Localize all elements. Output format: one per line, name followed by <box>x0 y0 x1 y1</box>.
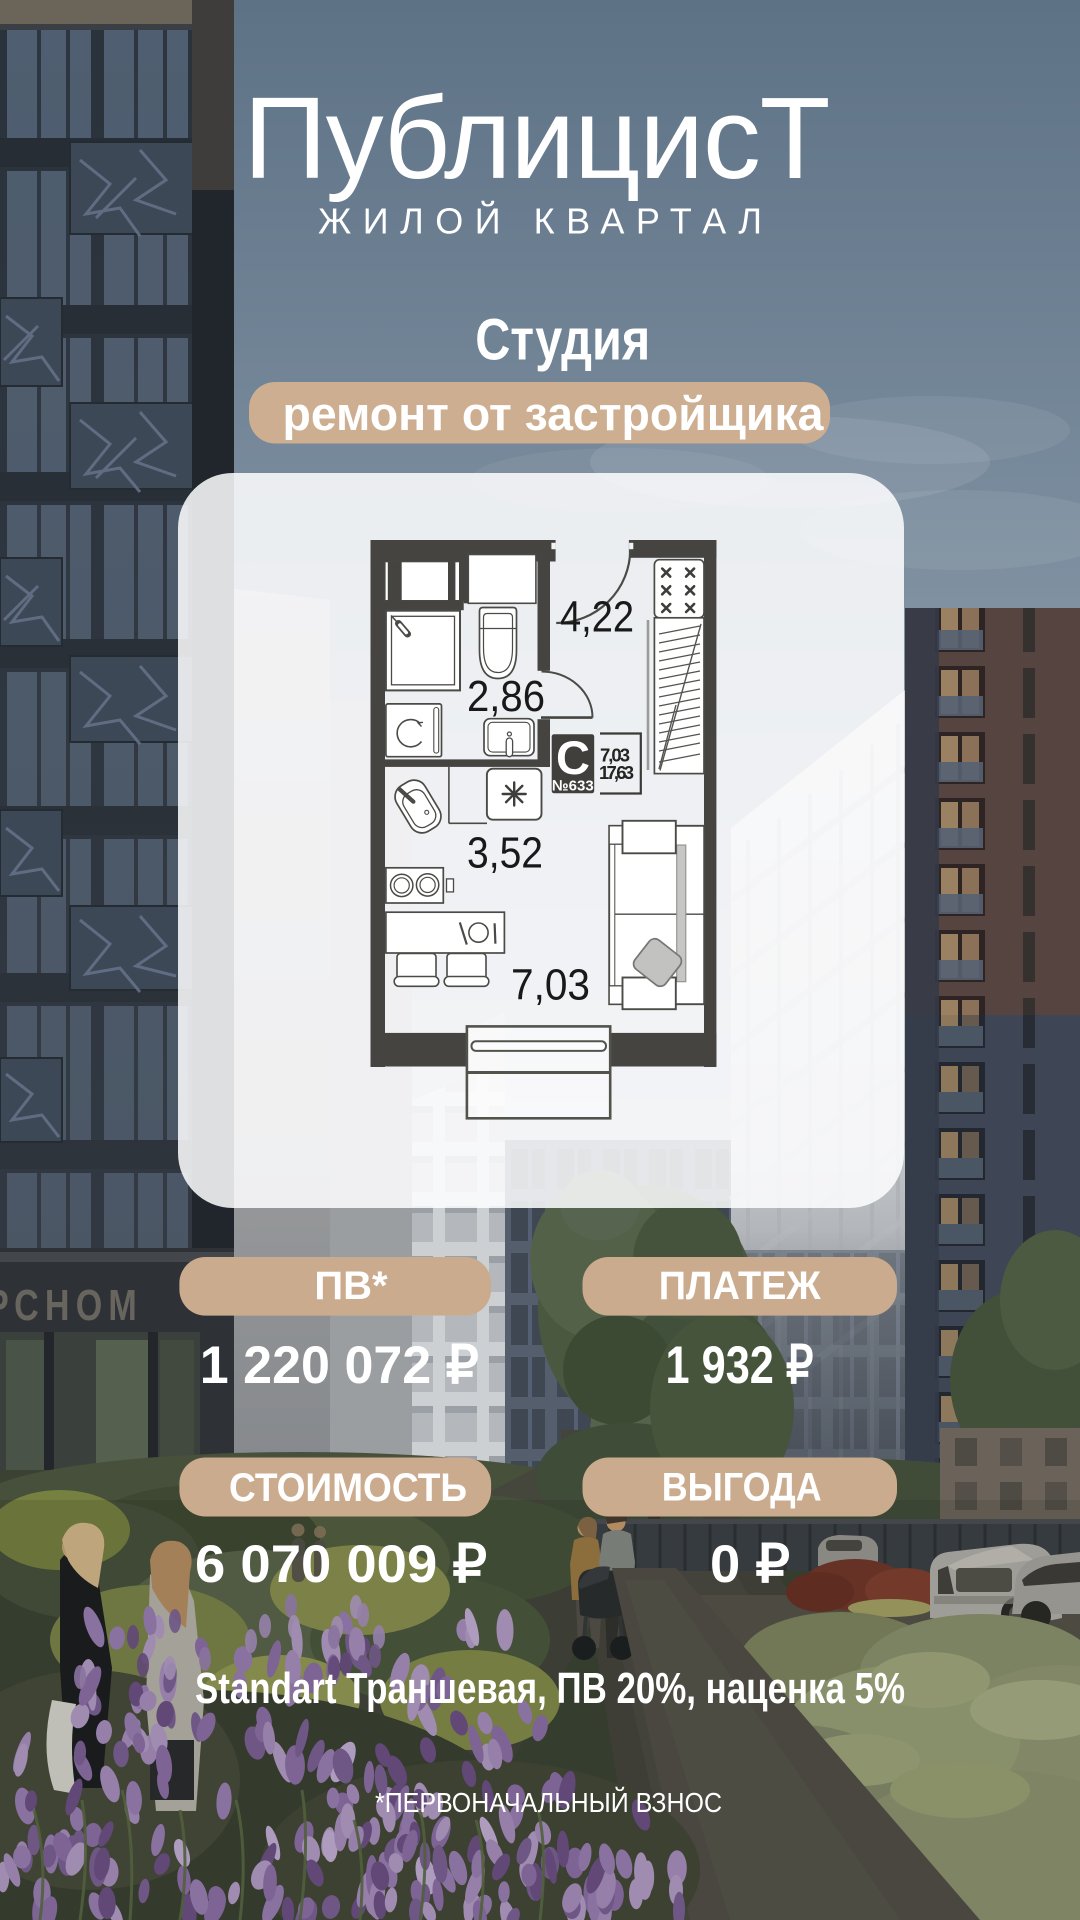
svg-text:ВЫГОДА: ВЫГОДА <box>662 1466 822 1510</box>
svg-text:СТОИМОСТЬ: СТОИМОСТЬ <box>229 1466 467 1510</box>
svg-text:ПЛАТЕЖ: ПЛАТЕЖ <box>659 1264 822 1308</box>
svg-text:7,03: 7,03 <box>511 962 590 1010</box>
svg-text:С: С <box>556 731 590 784</box>
svg-text:2,86: 2,86 <box>467 673 545 721</box>
svg-text:*ПЕРВОНАЧАЛЬНЫЙ ВЗНОС: *ПЕРВОНАЧАЛЬНЫЙ ВЗНОС <box>375 1787 722 1818</box>
svg-text:0 ₽: 0 ₽ <box>710 1535 790 1594</box>
svg-text:3,52: 3,52 <box>467 830 543 878</box>
svg-text:6 070 009 ₽: 6 070 009 ₽ <box>195 1535 487 1594</box>
svg-text:17,63: 17,63 <box>599 762 634 783</box>
svg-text:ПВ*: ПВ* <box>314 1264 388 1308</box>
svg-text:№633: №633 <box>552 778 594 795</box>
svg-text:1 220 072 ₽: 1 220 072 ₽ <box>200 1336 479 1395</box>
svg-text:1 932 ₽: 1 932 ₽ <box>666 1336 814 1395</box>
svg-text:Standart Траншевая, ПВ 20%, на: Standart Траншевая, ПВ 20%, наценка 5% <box>195 1664 905 1713</box>
svg-text:4,22: 4,22 <box>560 594 634 642</box>
